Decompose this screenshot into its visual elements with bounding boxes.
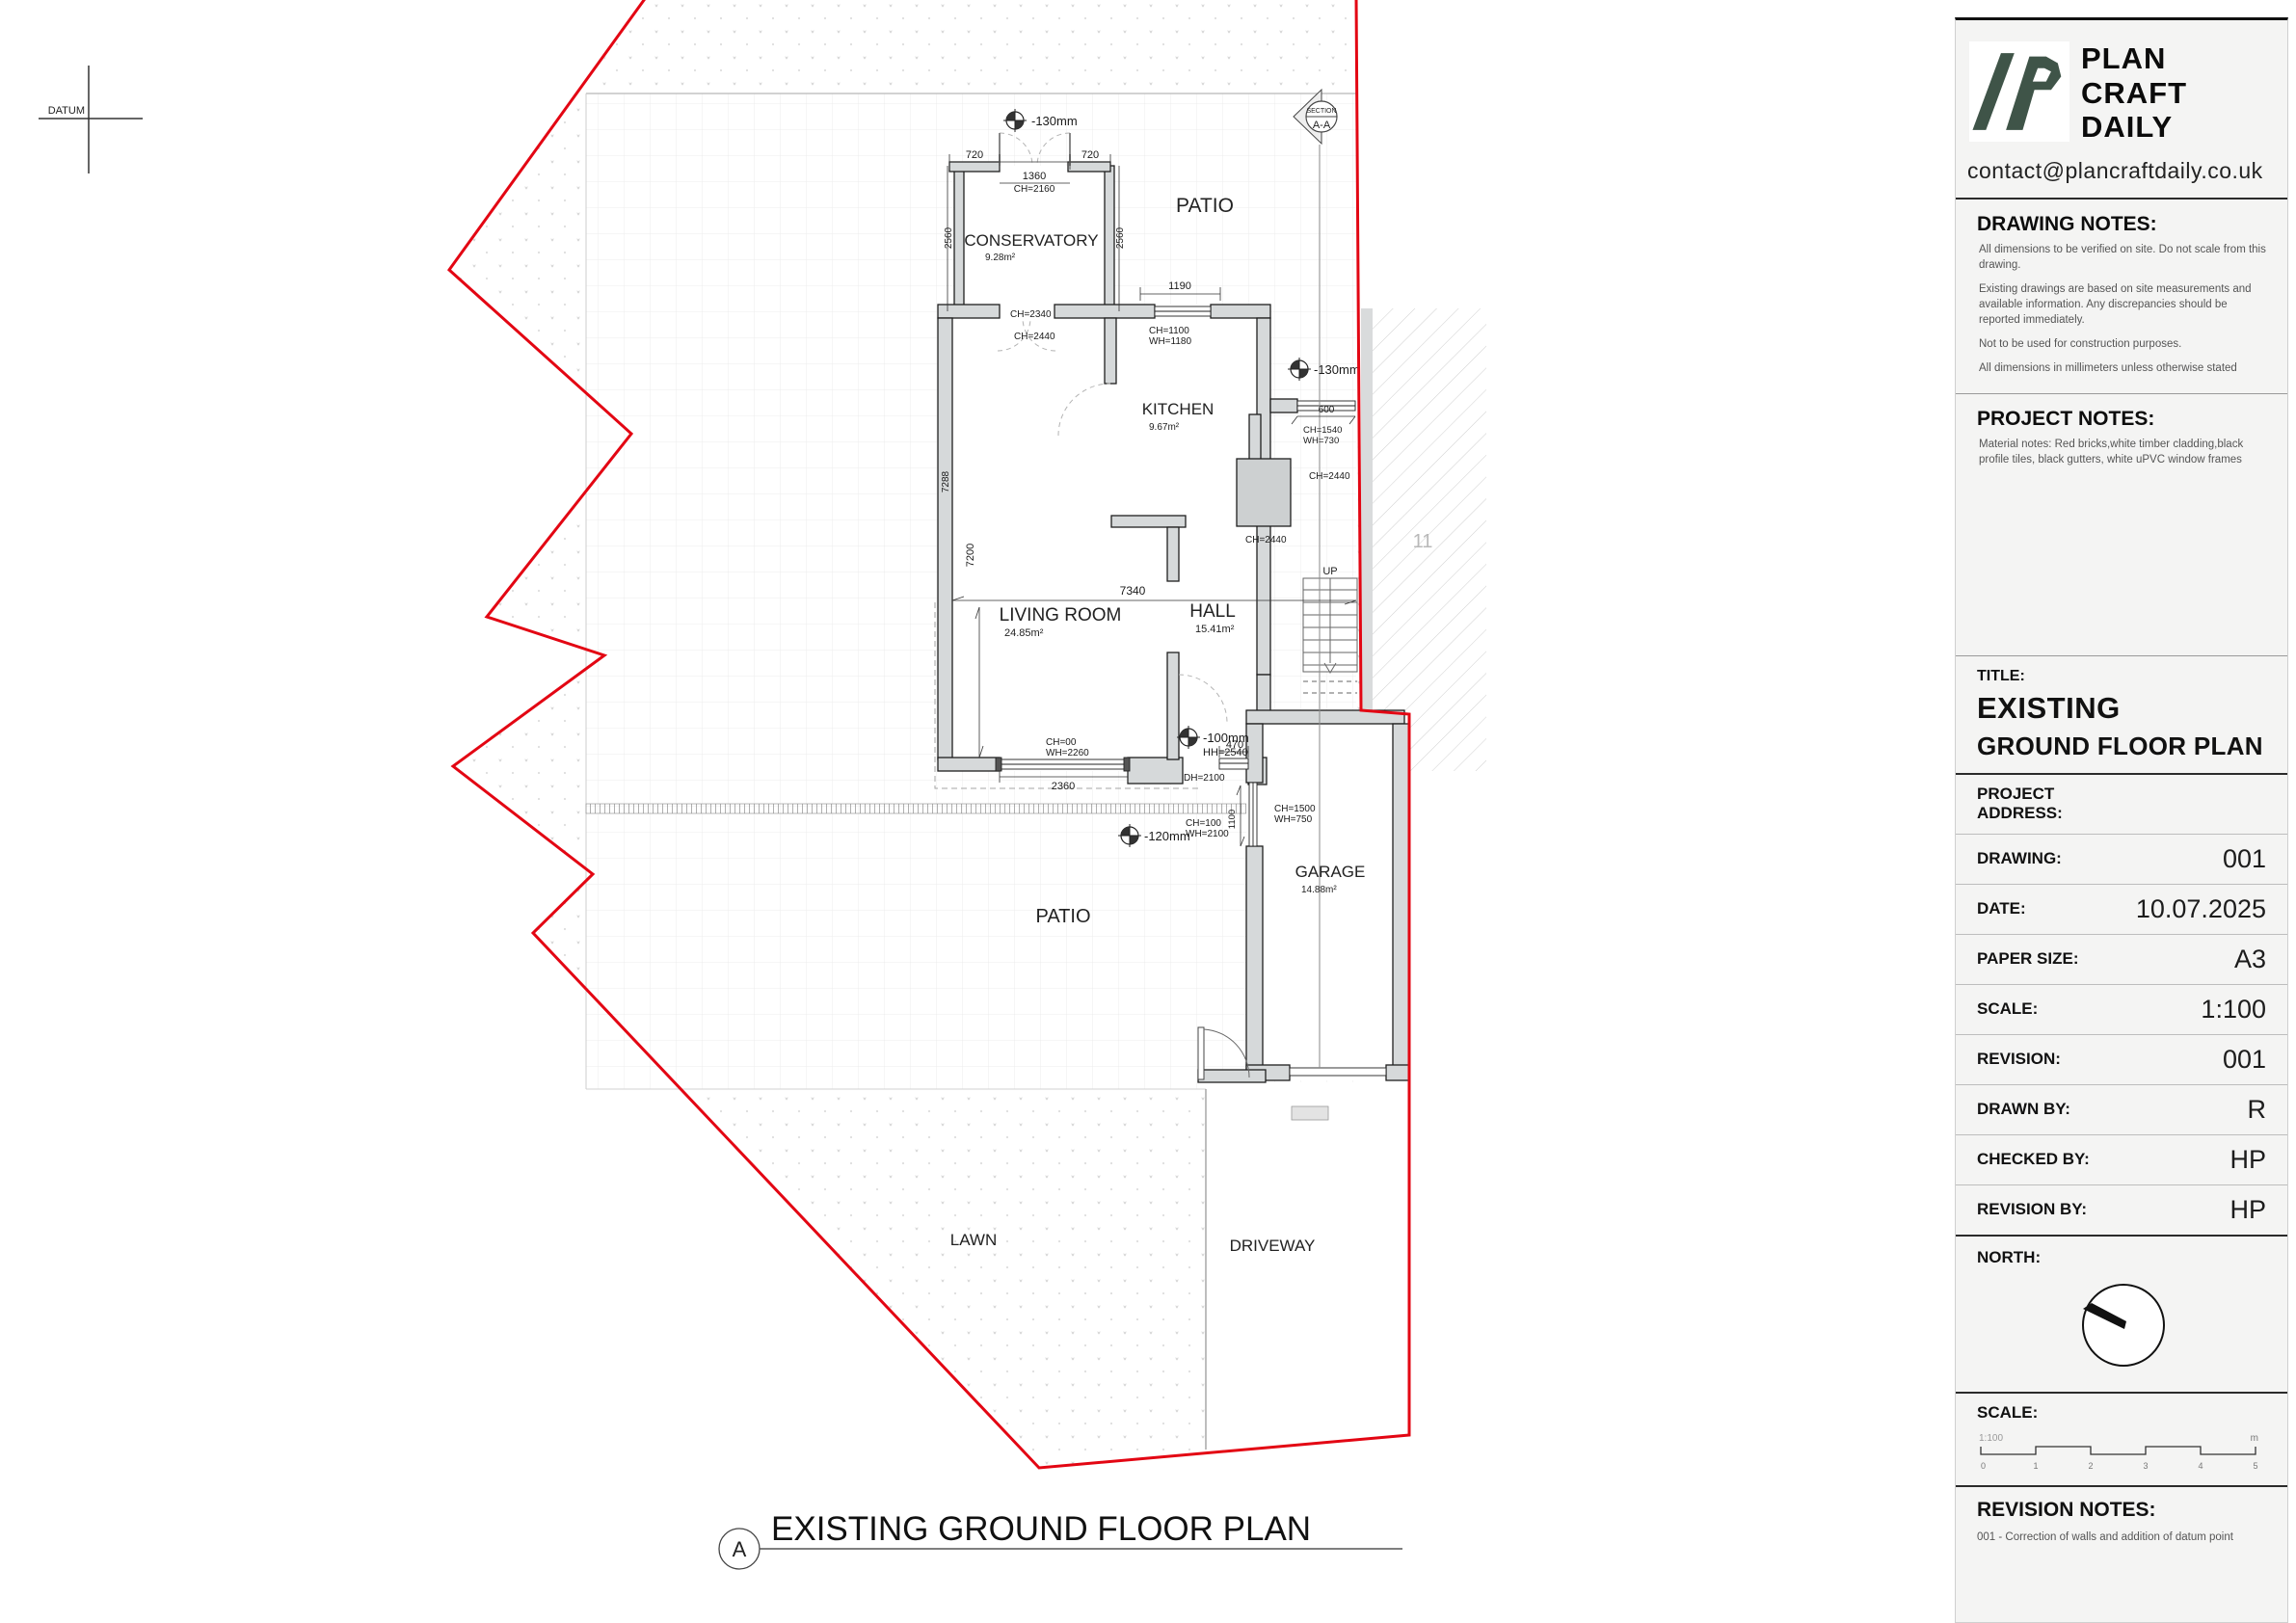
level-value: -130mm [1314, 362, 1360, 377]
field-row-revision: REVISION: 001 [1956, 1035, 2287, 1084]
field-value: 1:100 [2201, 995, 2266, 1024]
scale-section: SCALE: 1:100 m 0 1 2 3 4 5 [1956, 1394, 2287, 1485]
wall [1167, 527, 1179, 581]
brand-name: PLAN CRAFT DAILY [2081, 41, 2187, 145]
room-area: 9.67m² [1149, 422, 1180, 433]
room-area: 24.85m² [1004, 627, 1044, 639]
revision-notes-section: REVISION NOTES: 001 - Correction of wall… [1956, 1487, 2287, 1555]
room-area: 14.88m² [1301, 885, 1337, 895]
drawing-title-line2: GROUND FLOOR PLAN [1977, 732, 2266, 761]
stairs-up-label: UP [1322, 566, 1337, 577]
title-block: PLAN CRAFT DAILY contact@plancraftdaily.… [1955, 17, 2288, 1623]
section-name: A-A [1313, 120, 1331, 131]
field-label: REVISION: [1977, 1050, 2061, 1069]
driveway-area [1206, 1082, 1409, 1452]
wall [1111, 516, 1186, 527]
window-jamb [1124, 758, 1130, 771]
field-row-date: DATE: 10.07.2025 [1956, 885, 2287, 934]
lawn-label: LAWN [950, 1231, 998, 1249]
drawing-notes-heading: DRAWING NOTES: [1977, 213, 2266, 236]
dim: 1190 [1168, 280, 1191, 292]
field-value: HP [2229, 1195, 2266, 1225]
dim: 720 [966, 149, 983, 161]
wall [1198, 1070, 1266, 1082]
dim: CH=2440 [1245, 535, 1287, 545]
dim: 1360 [1023, 171, 1046, 182]
brand-line: CRAFT [2081, 76, 2187, 111]
dim: 2560 [1115, 226, 1126, 249]
window-jamb [996, 758, 1001, 771]
field-value: 10.07.2025 [2136, 894, 2266, 924]
plan-title-bubble-letter: A [733, 1537, 747, 1561]
wall [938, 758, 1000, 771]
garden-wall-band [586, 804, 1250, 813]
company-logo-icon [1969, 41, 2069, 142]
north-section: NORTH: [1956, 1237, 2287, 1392]
datum-group: DATUM [39, 66, 143, 173]
room-label-living-room: LIVING ROOM [1000, 605, 1122, 625]
room-label-kitchen: KITCHEN [1142, 400, 1215, 418]
patio-bottom-label: PATIO [1035, 906, 1090, 927]
dim: 7200 [965, 544, 976, 567]
field-value: 001 [2223, 1045, 2266, 1075]
field-row-drawn-by: DRAWN BY: R [1956, 1085, 2287, 1134]
chimney-breast [1237, 459, 1291, 526]
room-label-hall: HALL [1189, 601, 1236, 622]
dim: WH=2260 [1046, 748, 1089, 758]
dim: WH=730 [1303, 436, 1339, 446]
drawing-note: All dimensions to be verified on site. D… [1979, 242, 2266, 273]
plan-title-text: EXISTING GROUND FLOOR PLAN [771, 1510, 1311, 1548]
field-row-drawing: DRAWING: 001 [1956, 835, 2287, 884]
north-label: NORTH: [1977, 1248, 2266, 1267]
dim: CH=1500 [1274, 804, 1316, 814]
project-note: Material notes: Red bricks,white timber … [1979, 437, 2266, 467]
field-row-scale: SCALE: 1:100 [1956, 985, 2287, 1034]
drawing-note: Not to be used for construction purposes… [1979, 336, 2266, 352]
scale-tick: 4 [2198, 1461, 2203, 1471]
spacer [1956, 484, 2287, 655]
field-row-revision-by: REVISION BY: HP [1956, 1185, 2287, 1235]
field-row-project-address: PROJECT ADDRESS: [1956, 775, 2287, 834]
scale-tick: 5 [2253, 1461, 2257, 1471]
revision-notes-heading: REVISION NOTES: [1977, 1499, 2266, 1522]
level-value: -120mm [1144, 829, 1190, 843]
field-label: PROJECT ADDRESS: [1977, 785, 2063, 824]
brand-line: PLAN [2081, 41, 2187, 76]
scale-unit: m [2251, 1433, 2258, 1444]
drawing-note: Existing drawings are based on site meas… [1979, 281, 2266, 328]
dim: 7340 [1120, 584, 1146, 598]
field-row-checked-by: CHECKED BY: HP [1956, 1135, 2287, 1184]
drawing-title-line1: EXISTING [1977, 691, 2266, 726]
project-notes-section: PROJECT NOTES: Material notes: Red brick… [1956, 394, 2287, 484]
dim: DH=2100 [1184, 773, 1225, 784]
drawing-notes-section: DRAWING NOTES: All dimensions to be veri… [1956, 200, 2287, 393]
wall [1246, 846, 1263, 1071]
field-label: DRAWN BY: [1977, 1100, 2070, 1119]
wall [954, 166, 964, 311]
brand-line: DAILY [2081, 110, 2187, 145]
garage-door [1290, 1068, 1386, 1076]
contact-email: contact@plancraftdaily.co.uk [1956, 145, 2287, 184]
level-value: -130mm [1031, 114, 1078, 128]
floor-plan-canvas: SECTION A-A DATUM -130mm -130mm -100mm H… [0, 0, 2296, 1623]
wall [1167, 652, 1179, 759]
dim: 2560 [944, 226, 954, 249]
field-value: 001 [2223, 844, 2266, 874]
scale-ratio: 1:100 [1979, 1433, 2003, 1444]
driveway-label: DRIVEWAY [1230, 1237, 1316, 1255]
dim: 1100 [1227, 810, 1238, 829]
wall [938, 318, 952, 759]
field-value: R [2248, 1095, 2267, 1125]
section-label: SECTION [1306, 108, 1336, 115]
field-label: DRAWING: [1977, 849, 2062, 868]
title-section: TITLE: EXISTING GROUND FLOOR PLAN [1956, 656, 2287, 771]
dim: CH=2440 [1014, 332, 1055, 342]
field-label: PAPER SIZE: [1977, 949, 2078, 969]
dim: WH=2100 [1186, 829, 1229, 839]
wall [1105, 318, 1116, 384]
wall [1105, 166, 1114, 311]
datum-label: DATUM [48, 105, 85, 117]
room-area: 9.28m² [985, 253, 1016, 263]
dim: WH=1180 [1149, 336, 1191, 347]
scale-tick: 1 [2033, 1461, 2038, 1471]
project-notes-heading: PROJECT NOTES: [1977, 408, 2266, 431]
field-value: HP [2229, 1145, 2266, 1175]
dim: CH=2340 [1010, 309, 1052, 320]
wall [1128, 758, 1183, 784]
dim: CH=2160 [1014, 184, 1055, 195]
wall [1068, 162, 1110, 172]
dim: 600 [1319, 405, 1335, 415]
dim: 2360 [1052, 781, 1075, 792]
scale-tick: 3 [2143, 1461, 2148, 1471]
room-label-conservatory: CONSERVATORY [964, 231, 1098, 250]
field-label: REVISION BY: [1977, 1200, 2087, 1219]
wall [949, 162, 1000, 172]
scale-label: SCALE: [1977, 1403, 2266, 1423]
revision-note: 001 - Correction of walls and addition o… [1977, 1530, 2266, 1545]
wall [1249, 414, 1261, 461]
dim: CH=2440 [1309, 471, 1350, 482]
field-label: DATE: [1977, 899, 2026, 918]
wall [1257, 675, 1270, 713]
brand-row: PLAN CRAFT DAILY [1956, 34, 2287, 145]
logo-glyph [1969, 41, 2069, 142]
dim: CH=1100 [1149, 326, 1189, 336]
wall [1393, 724, 1409, 1071]
field-label: CHECKED BY: [1977, 1150, 2090, 1169]
dim: CH=100 [1186, 818, 1221, 829]
drawing-note: All dimensions in millimeters unless oth… [1979, 360, 2266, 376]
dim: WH=750 [1274, 814, 1313, 825]
wall [1386, 1065, 1409, 1080]
field-value: A3 [2234, 945, 2266, 974]
plan-title-group: A EXISTING GROUND FLOOR PLAN [719, 1510, 1402, 1569]
scale-bar: 1:100 m 0 1 2 3 4 5 [1977, 1430, 2266, 1475]
dim: 470 [1226, 739, 1243, 751]
dim: CH=1540 [1303, 425, 1342, 436]
wall [1211, 305, 1270, 318]
driveway-step [1292, 1106, 1328, 1120]
scale-tick: 2 [2088, 1461, 2093, 1471]
wall [1055, 305, 1155, 318]
field-label: SCALE: [1977, 999, 2038, 1019]
dim: 720 [1081, 149, 1099, 161]
dim: CH=00 [1046, 737, 1077, 748]
north-compass-icon [2069, 1271, 2175, 1377]
drawing-sheet: SECTION A-A DATUM -130mm -130mm -100mm H… [0, 0, 2296, 1623]
front-door-leaf [1198, 1027, 1204, 1079]
hall-sidelight-window [1219, 758, 1248, 769]
field-row-paper-size: PAPER SIZE: A3 [1956, 935, 2287, 984]
room-label-garage: GARAGE [1295, 863, 1366, 881]
party-wall [1361, 308, 1373, 771]
wall [1270, 399, 1297, 412]
scale-tick: 0 [1981, 1461, 1986, 1471]
neighbor-plot-label: 11 [1413, 531, 1433, 552]
patio-top-label: PATIO [1176, 195, 1234, 217]
room-area: 15.41m² [1195, 624, 1235, 635]
dim: 7288 [941, 470, 951, 492]
title-label: TITLE: [1977, 668, 2266, 685]
